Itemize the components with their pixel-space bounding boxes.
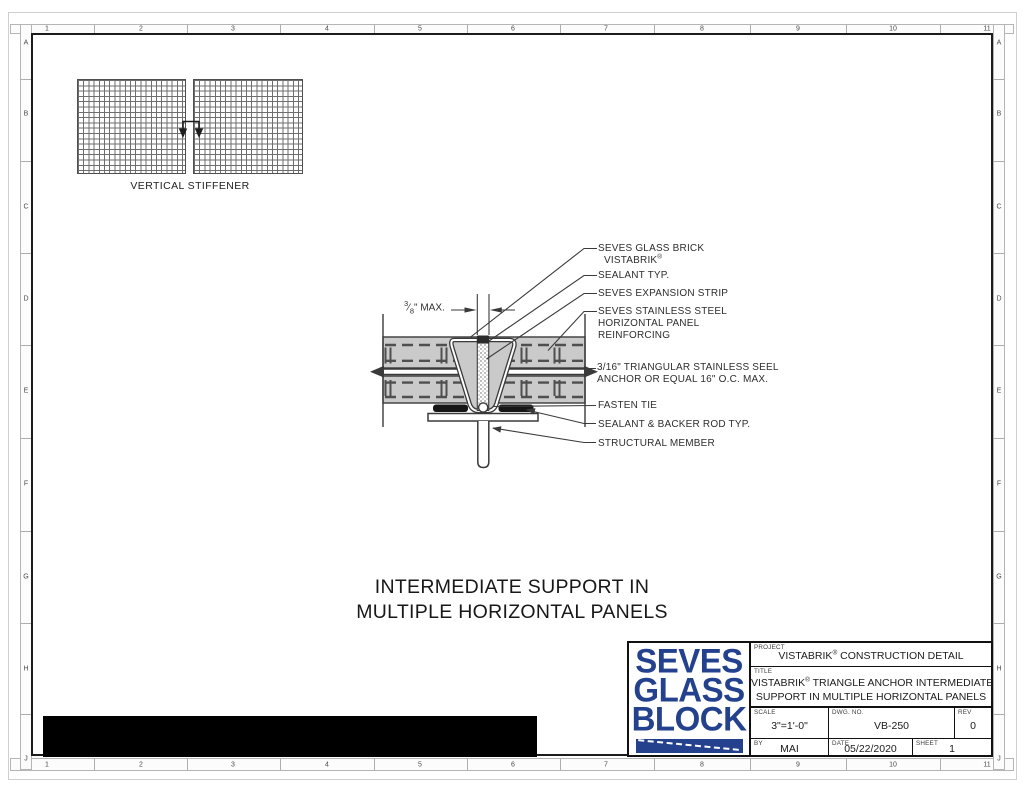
seves-logo: SEVES GLASS BLOCK <box>629 643 751 755</box>
project-value: VISTABRIK® CONSTRUCTION DETAIL <box>751 650 991 662</box>
dwg-no-label: DWG. NO. <box>832 709 864 716</box>
drawing-sheet: 1234567891011 1234567891011 ABCDEFGHJ AB… <box>0 0 1024 791</box>
logo-bar-dash <box>638 739 739 751</box>
date-cell: DATE 05/22/2020 <box>829 739 913 755</box>
callout-glass-brick: SEVES GLASS BRICK VISTABRIK® <box>598 243 704 267</box>
fasten-tie-shape <box>479 403 488 412</box>
dwg-no-value: VB-250 <box>829 720 954 732</box>
logo-line-3: BLOCK <box>629 703 749 733</box>
project-cell: PROJECT VISTABRIK® CONSTRUCTION DETAIL <box>751 643 991 667</box>
callout-backer-rod: SEALANT & BACKER ROD TYP. <box>598 419 750 431</box>
scale-value: 3"=1'-0" <box>751 720 828 732</box>
logo-bar <box>636 739 743 753</box>
title-value-line2: SUPPORT IN MULTIPLE HORIZONTAL PANELS <box>751 691 991 703</box>
expansion-strip-shape <box>477 336 489 411</box>
rev-label: REV <box>958 709 972 716</box>
dimension-lines <box>451 294 515 335</box>
sheet-cell: SHEET 1 <box>913 739 991 755</box>
drawing-caption: INTERMEDIATE SUPPORT IN MULTIPLE HORIZON… <box>262 575 762 624</box>
dimension-label: 3⁄8" MAX. <box>404 299 445 315</box>
structural-member-shape <box>428 414 538 468</box>
title-value-line1: VISTABRIK® TRIANGLE ANCHOR INTERMEDIATE <box>751 677 991 689</box>
dwg-no-cell: DWG. NO. VB-250 <box>829 708 955 739</box>
by-cell: BY MAI <box>751 739 829 755</box>
callout-fasten-tie: FASTEN TIE <box>598 400 657 412</box>
title-cell: TITLE VISTABRIK® TRIANGLE ANCHOR INTERME… <box>751 667 991 709</box>
callout-anchor: 3/16" TRIANGULAR STAINLESS SEEL ANCHOR O… <box>597 362 779 386</box>
scale-label: SCALE <box>754 709 776 716</box>
rev-cell: REV 0 <box>955 708 991 739</box>
stiffener-arrows <box>179 122 203 139</box>
by-value: MAI <box>751 743 828 755</box>
callout-expansion-strip: SEVES EXPANSION STRIP <box>598 288 728 300</box>
rev-value: 0 <box>955 720 991 732</box>
title-block: SEVES GLASS BLOCK PROJECT VISTABRIK® CON… <box>627 641 993 757</box>
redacted-area <box>43 716 537 757</box>
callout-structural-member: STRUCTURAL MEMBER <box>598 438 715 450</box>
sheet-value: 1 <box>913 743 991 755</box>
date-value: 05/22/2020 <box>829 743 912 755</box>
callout-sealant: SEALANT TYP. <box>598 270 669 282</box>
callout-reinforcing: SEVES STAINLESS STEEL HORIZONTAL PANEL R… <box>598 306 727 343</box>
scale-cell: SCALE 3"=1'-0" <box>751 708 829 739</box>
title-label: TITLE <box>754 668 772 675</box>
